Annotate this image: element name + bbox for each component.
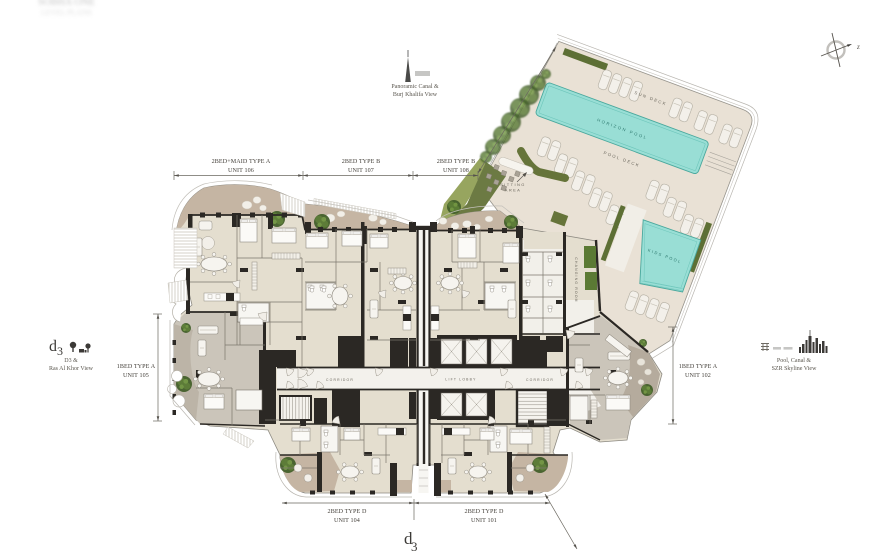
svg-text:3: 3 [411, 539, 418, 553]
svg-text:UNIT 108: UNIT 108 [443, 168, 469, 174]
svg-text:1BED TYPE A: 1BED TYPE A [117, 364, 156, 370]
svg-text:2BED TYPE B: 2BED TYPE B [437, 159, 476, 165]
svg-text:2BED+MAID TYPE A: 2BED+MAID TYPE A [212, 159, 271, 165]
svg-text:Ras Al Khor View: Ras Al Khor View [49, 366, 94, 372]
svg-text:LEVEL PLANS: LEVEL PLANS [41, 7, 92, 17]
svg-text:D3 &: D3 & [64, 358, 78, 364]
svg-text:Pool, Canal &: Pool, Canal & [777, 358, 811, 364]
svg-text:UNIT 104: UNIT 104 [334, 518, 360, 524]
svg-text:Panoramic Canal &: Panoramic Canal & [391, 84, 439, 90]
svg-text:UNIT 106: UNIT 106 [228, 168, 254, 174]
svg-text:UNIT 105: UNIT 105 [123, 373, 149, 379]
svg-text:CORRIDOR: CORRIDOR [326, 378, 354, 382]
svg-text:2BED TYPE B: 2BED TYPE B [342, 159, 381, 165]
svg-text:UNIT 101: UNIT 101 [471, 518, 497, 524]
svg-text:Burj Khalifa View: Burj Khalifa View [393, 91, 438, 98]
svg-text:CORRIDOR: CORRIDOR [526, 378, 554, 382]
svg-text:UNIT 102: UNIT 102 [685, 373, 711, 379]
svg-text:SZR Skyline View: SZR Skyline View [772, 366, 818, 372]
svg-text:2BED TYPE D: 2BED TYPE D [465, 509, 504, 515]
svg-text:z: z [856, 43, 860, 51]
svg-text:AREA: AREA [505, 188, 522, 193]
svg-text:2BED TYPE D: 2BED TYPE D [328, 509, 367, 515]
svg-text:SITTING: SITTING [500, 182, 526, 187]
svg-text:3: 3 [57, 344, 63, 358]
svg-text:LIFT LOBBY: LIFT LOBBY [445, 378, 476, 382]
svg-text:1BED TYPE A: 1BED TYPE A [679, 364, 718, 370]
svg-text:d: d [49, 338, 57, 355]
svg-text:CHANGING ROOM: CHANGING ROOM [574, 257, 578, 302]
svg-text:UNIT 107: UNIT 107 [348, 168, 374, 174]
